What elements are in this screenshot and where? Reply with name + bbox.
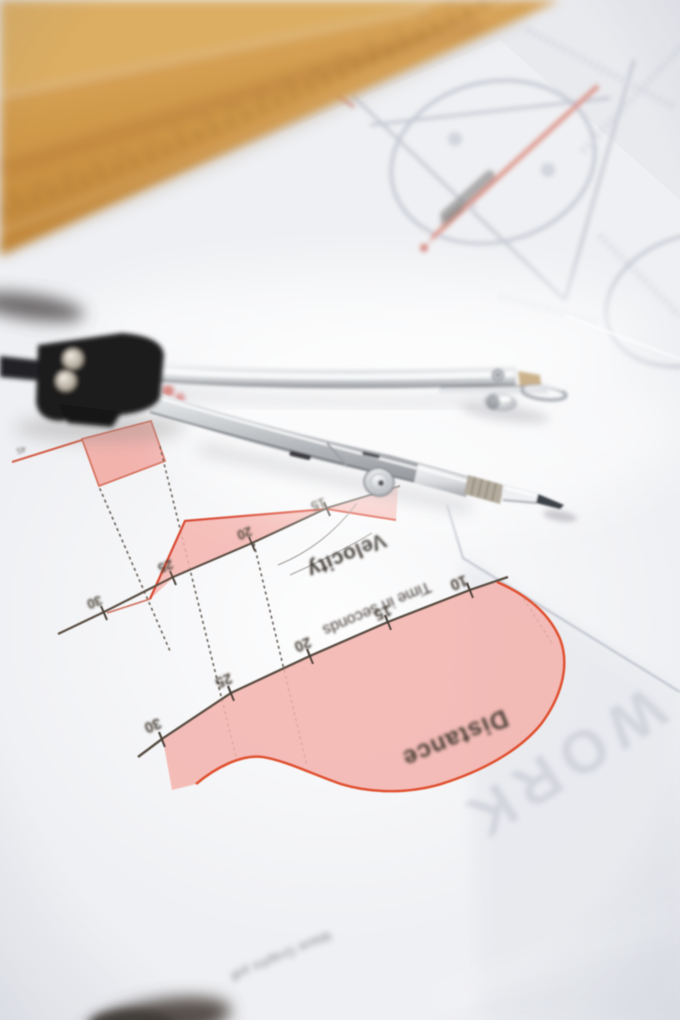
vignette-overlay [0, 0, 680, 1020]
photo-canvas: WORK 45 [0, 0, 680, 1020]
photo-drafting-scene: WORK 45 [0, 0, 680, 1020]
